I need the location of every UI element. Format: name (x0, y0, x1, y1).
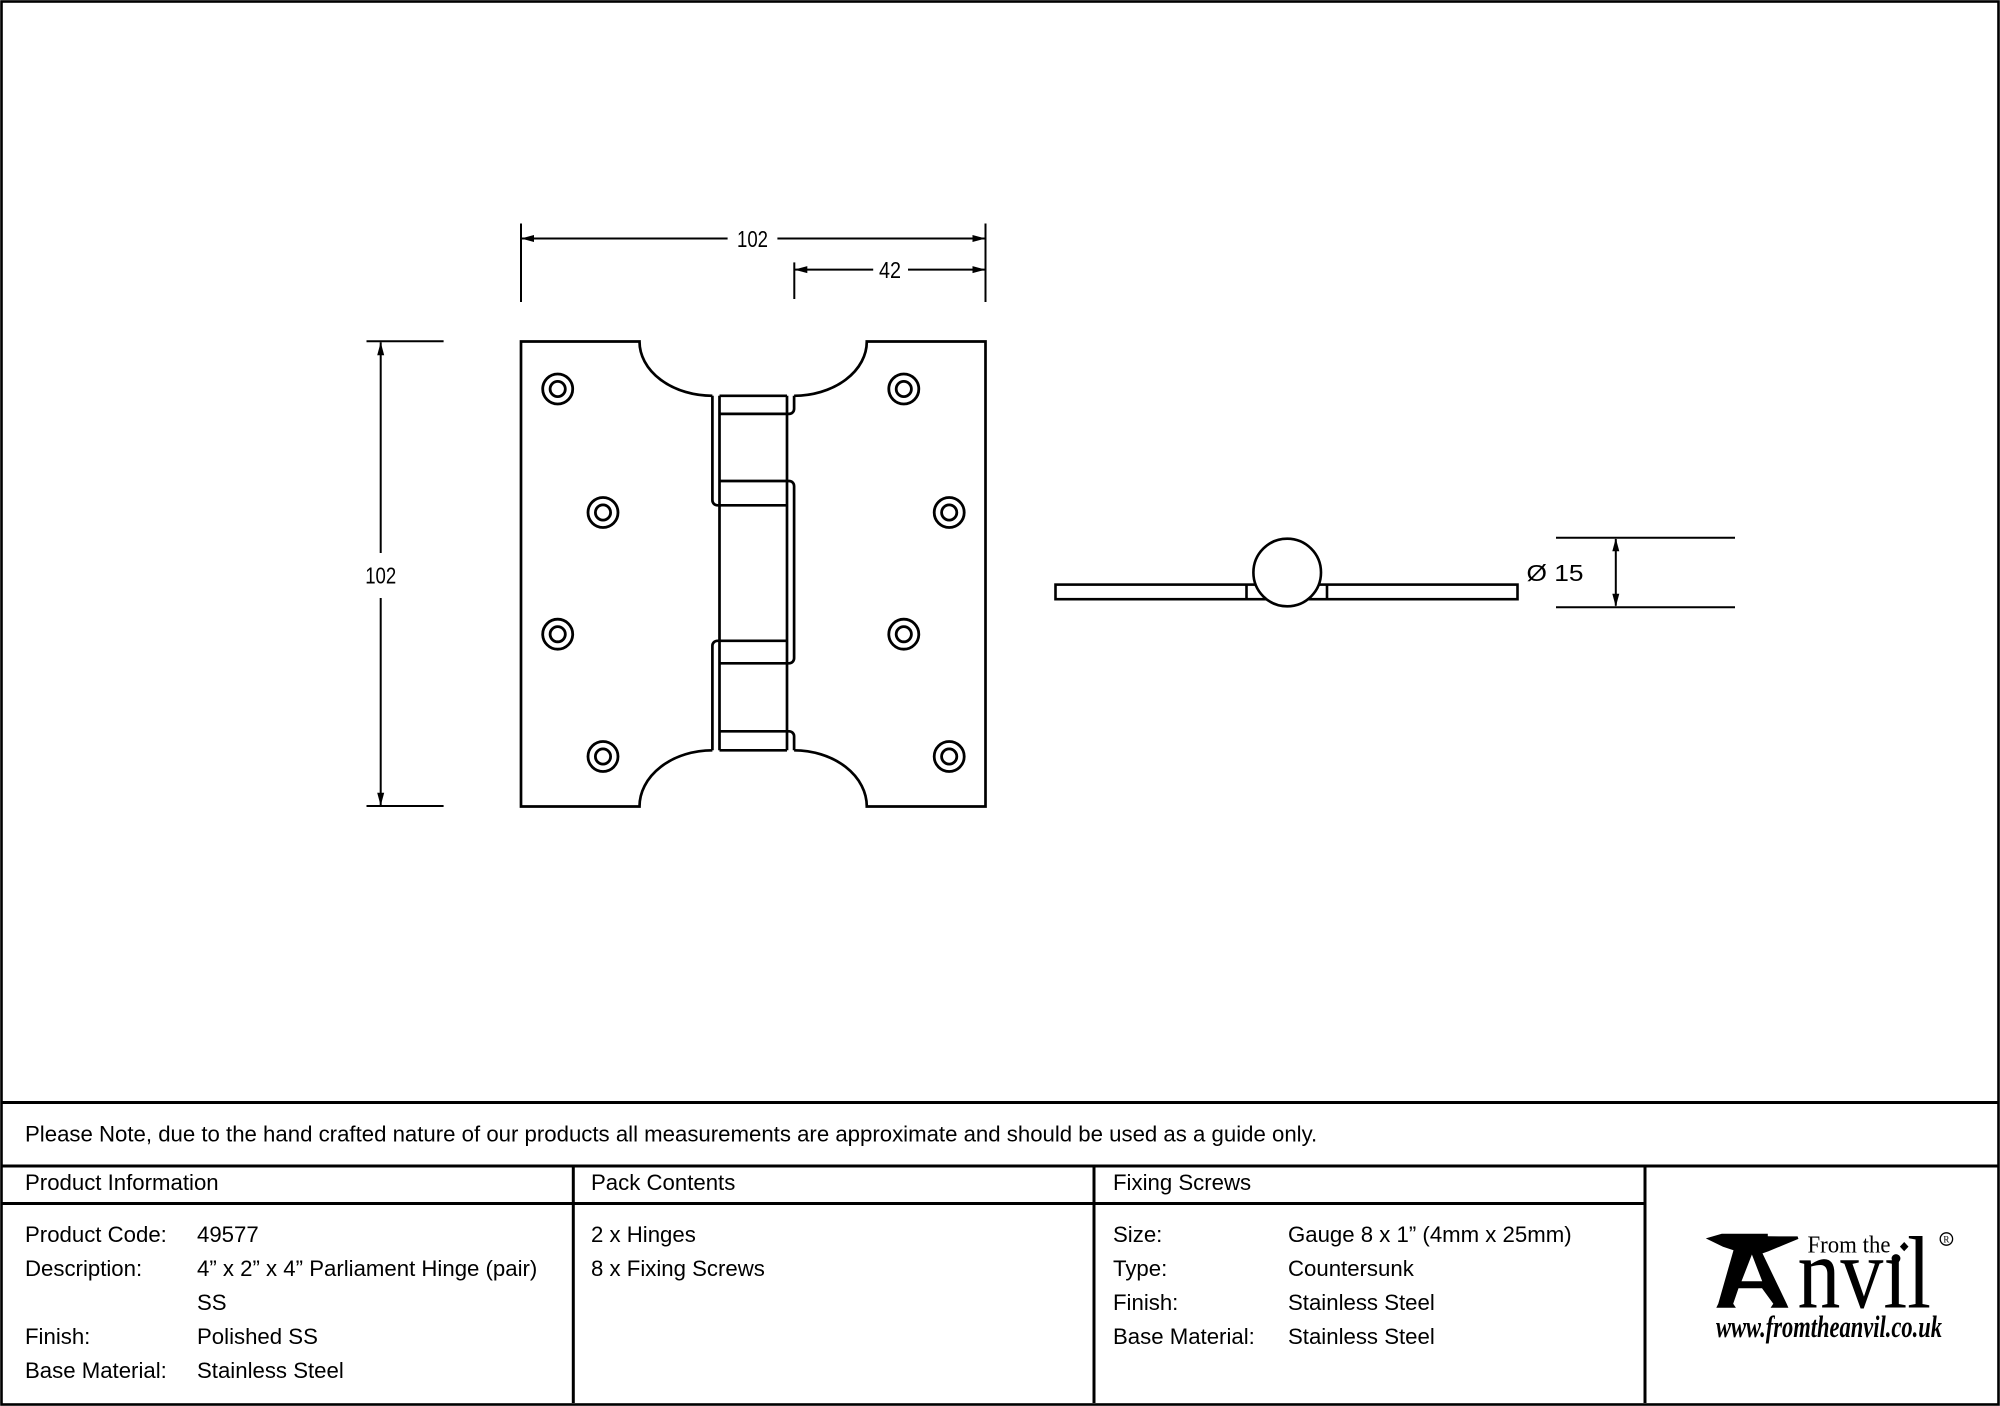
svg-text:102: 102 (737, 226, 768, 252)
svg-text:Please Note, due to the hand c: Please Note, due to the hand crafted nat… (25, 1122, 1317, 1147)
svg-text:Pack Contents: Pack Contents (591, 1170, 735, 1195)
svg-text:Size:: Size: (1113, 1222, 1162, 1247)
svg-text:Stainless Steel: Stainless Steel (1288, 1324, 1435, 1349)
svg-text:49577: 49577 (197, 1222, 259, 1247)
svg-text:Base Material:: Base Material: (1113, 1324, 1255, 1349)
svg-text:Base Material:: Base Material: (25, 1358, 167, 1383)
svg-text:Countersunk: Countersunk (1288, 1256, 1415, 1281)
svg-text:Gauge 8 x 1” (4mm x 25mm): Gauge 8 x 1” (4mm x 25mm) (1288, 1222, 1572, 1247)
svg-text:8 x Fixing Screws: 8 x Fixing Screws (591, 1256, 765, 1281)
svg-text:Stainless Steel: Stainless Steel (1288, 1290, 1435, 1315)
svg-text:Type:: Type: (1113, 1256, 1167, 1281)
svg-text:Stainless Steel: Stainless Steel (197, 1358, 344, 1383)
svg-text:Product Code:: Product Code: (25, 1222, 167, 1247)
svg-text:Ø 15: Ø 15 (1527, 560, 1584, 586)
svg-text:www.fromtheanvil.co.uk: www.fromtheanvil.co.uk (1716, 1309, 1942, 1344)
svg-text:Fixing Screws: Fixing Screws (1113, 1170, 1251, 1195)
svg-text:42: 42 (879, 257, 901, 283)
svg-text:Polished SS: Polished SS (197, 1324, 318, 1349)
svg-text:102: 102 (365, 563, 396, 589)
svg-text:Finish:: Finish: (1113, 1290, 1178, 1315)
svg-text:From the: From the (1808, 1232, 1891, 1258)
svg-text:Product Information: Product Information (25, 1170, 219, 1195)
svg-text:Finish:: Finish: (25, 1324, 90, 1349)
svg-text:Description:: Description: (25, 1256, 142, 1281)
svg-text:R: R (1943, 1235, 1949, 1245)
svg-text:2 x Hinges: 2 x Hinges (591, 1222, 696, 1247)
svg-text:4” x 2” x 4” Parliament Hinge: 4” x 2” x 4” Parliament Hinge (pair) (197, 1256, 537, 1281)
svg-text:SS: SS (197, 1290, 227, 1315)
